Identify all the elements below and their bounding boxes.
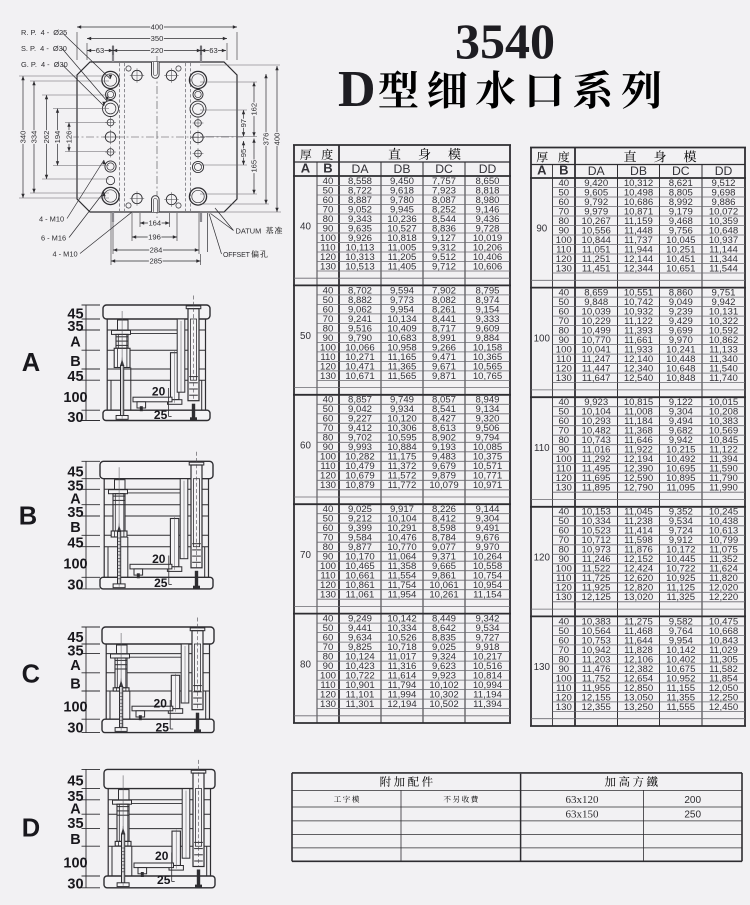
svg-text:376: 376 xyxy=(262,133,271,146)
svg-text:63x150: 63x150 xyxy=(566,808,600,820)
svg-text:63x120: 63x120 xyxy=(566,794,600,806)
svg-text:334: 334 xyxy=(30,131,39,144)
svg-text:130: 130 xyxy=(534,662,551,673)
svg-text:20: 20 xyxy=(155,849,169,863)
svg-text:D: D xyxy=(22,815,40,843)
svg-text:220: 220 xyxy=(151,46,164,55)
svg-text:45: 45 xyxy=(67,774,83,790)
svg-text:45: 45 xyxy=(67,536,83,552)
svg-text:126: 126 xyxy=(65,131,74,144)
svg-text:63: 63 xyxy=(96,46,104,55)
svg-text:400: 400 xyxy=(273,133,282,146)
svg-text:97: 97 xyxy=(239,119,248,127)
svg-text:B: B xyxy=(70,354,80,370)
svg-text:50: 50 xyxy=(300,331,311,342)
svg-text:100: 100 xyxy=(63,390,87,406)
svg-text:DD: DD xyxy=(479,162,497,176)
svg-text:R. P. 4 - Ø25: R. P. 4 - Ø25 xyxy=(21,28,67,37)
svg-text:DB: DB xyxy=(630,164,647,178)
svg-text:40: 40 xyxy=(300,222,311,233)
svg-text:6 - M16: 6 - M16 xyxy=(41,234,66,243)
svg-text:350: 350 xyxy=(151,34,164,43)
svg-text:DA: DA xyxy=(588,164,606,178)
svg-text:20: 20 xyxy=(152,552,166,566)
svg-text:60: 60 xyxy=(300,441,311,452)
svg-text:400: 400 xyxy=(151,23,164,32)
svg-text:S. P. 4 - Ø30: S. P. 4 - Ø30 xyxy=(21,44,67,53)
svg-text:C: C xyxy=(22,660,40,688)
svg-text:D: D xyxy=(338,61,376,118)
svg-text:30: 30 xyxy=(67,721,83,737)
svg-text:DB: DB xyxy=(394,162,411,176)
svg-text:20: 20 xyxy=(152,385,166,399)
svg-text:285: 285 xyxy=(149,257,162,266)
svg-text:100: 100 xyxy=(63,557,87,573)
svg-text:200: 200 xyxy=(684,795,701,806)
svg-text:25: 25 xyxy=(154,576,168,590)
svg-text:25: 25 xyxy=(157,873,171,887)
svg-text:DC: DC xyxy=(672,164,690,178)
svg-text:30: 30 xyxy=(67,578,83,594)
svg-text:110: 110 xyxy=(534,443,550,454)
svg-text:B: B xyxy=(19,503,37,531)
svg-text:B: B xyxy=(323,161,332,176)
svg-text:B: B xyxy=(70,520,80,536)
svg-text:80: 80 xyxy=(300,659,311,670)
svg-text:35: 35 xyxy=(67,319,83,335)
svg-text:DC: DC xyxy=(435,162,453,176)
svg-text:162: 162 xyxy=(250,103,259,116)
svg-text:70: 70 xyxy=(300,550,311,561)
svg-text:OFFSET: OFFSET xyxy=(223,252,251,259)
svg-text:A: A xyxy=(70,335,81,351)
svg-text:B: B xyxy=(70,677,80,693)
svg-text:95: 95 xyxy=(239,149,248,157)
svg-text:B: B xyxy=(559,163,568,178)
svg-text:3540: 3540 xyxy=(455,13,555,69)
svg-text:196: 196 xyxy=(148,233,161,242)
svg-text:A: A xyxy=(70,658,81,674)
svg-text:35: 35 xyxy=(67,816,83,832)
svg-text:262: 262 xyxy=(42,131,51,144)
svg-text:A: A xyxy=(22,349,40,377)
svg-text:30: 30 xyxy=(67,410,83,426)
svg-text:250: 250 xyxy=(684,809,701,820)
svg-text:284: 284 xyxy=(150,246,163,255)
svg-text:DD: DD xyxy=(715,164,733,178)
svg-text:DA: DA xyxy=(352,162,370,176)
svg-text:25: 25 xyxy=(154,408,168,422)
svg-text:4 - M10: 4 - M10 xyxy=(39,215,64,224)
svg-text:A: A xyxy=(537,163,547,178)
svg-text:B: B xyxy=(70,832,80,848)
svg-text:164: 164 xyxy=(148,219,161,228)
svg-text:A: A xyxy=(301,161,311,176)
svg-text:30: 30 xyxy=(67,877,83,893)
svg-text:100: 100 xyxy=(63,700,87,716)
svg-text:G. P. 4 - Ø30: G. P. 4 - Ø30 xyxy=(21,60,68,69)
svg-text:35: 35 xyxy=(67,505,83,521)
svg-text:165: 165 xyxy=(250,160,259,173)
svg-text:340: 340 xyxy=(19,131,28,144)
svg-text:63: 63 xyxy=(209,46,217,55)
svg-text:90: 90 xyxy=(536,224,547,235)
svg-text:194: 194 xyxy=(53,131,62,144)
svg-text:25: 25 xyxy=(156,721,170,735)
svg-text:45: 45 xyxy=(67,369,83,385)
svg-text:DATUM: DATUM xyxy=(236,227,262,236)
svg-text:100: 100 xyxy=(63,856,87,872)
svg-text:100: 100 xyxy=(534,333,551,344)
svg-text:120: 120 xyxy=(534,553,551,564)
svg-text:20: 20 xyxy=(154,697,168,711)
svg-text:4 - M10: 4 - M10 xyxy=(53,250,78,259)
